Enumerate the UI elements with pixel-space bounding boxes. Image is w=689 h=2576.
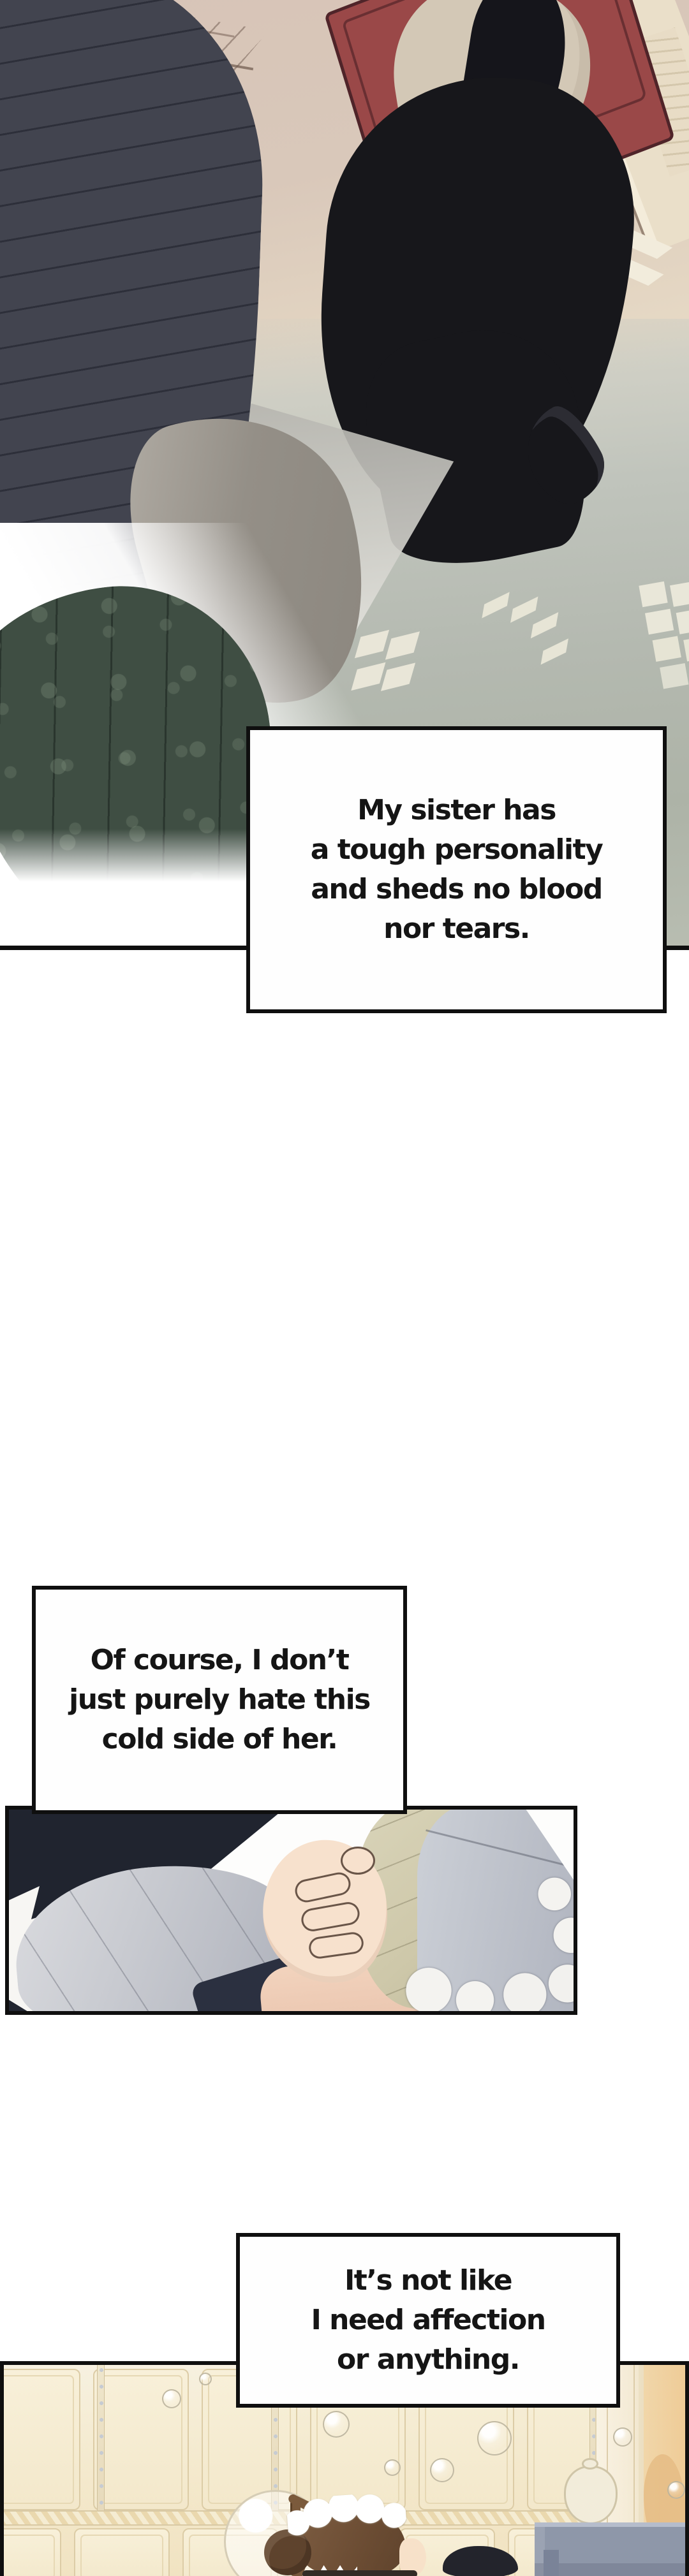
narration-box-2: Of course, I don’t just purely hate this… bbox=[32, 1586, 407, 1814]
soap-bubble bbox=[199, 2373, 212, 2385]
blanket-wool-trim bbox=[392, 1873, 577, 2011]
soap-bubble bbox=[613, 2427, 632, 2447]
panel-blanket-grip-scene bbox=[5, 1806, 577, 2015]
wall-panel bbox=[0, 2369, 80, 2510]
soap-bubble bbox=[162, 2389, 181, 2408]
bottom-white-fade bbox=[0, 829, 249, 946]
soap-bubble bbox=[430, 2458, 454, 2482]
narration-line: nor tears. bbox=[383, 909, 530, 949]
window-light-grid bbox=[639, 582, 667, 607]
wall-divider-strip bbox=[97, 2365, 105, 2513]
narration-line: just purely hate this bbox=[69, 1680, 370, 1720]
narration-box-1: My sister has a tough personality and sh… bbox=[246, 726, 667, 1013]
narration-box-3: It’s not like I need affection or anythi… bbox=[236, 2233, 620, 2408]
soap-bubble bbox=[477, 2421, 512, 2455]
narration-line: It’s not like bbox=[344, 2261, 512, 2301]
narration-line: and sheds no blood bbox=[311, 870, 602, 909]
teapot-lid bbox=[582, 2458, 598, 2470]
narration-line: Of course, I don’t bbox=[91, 1641, 349, 1680]
wall-panel-lower bbox=[0, 2528, 61, 2576]
soap-bubble bbox=[667, 2481, 685, 2499]
narration-line: a tough personality bbox=[311, 830, 603, 870]
glass-teapot bbox=[564, 2466, 618, 2524]
soap-bubble bbox=[323, 2411, 350, 2438]
thumb-knuckle bbox=[341, 1847, 375, 1875]
cabinet-leg bbox=[544, 2550, 559, 2576]
webtoon-page: My sister has a tough personality and sh… bbox=[0, 0, 689, 2576]
soap-bubble bbox=[384, 2459, 401, 2476]
narration-line: cold side of her. bbox=[102, 1720, 337, 1759]
narration-line: My sister has bbox=[357, 791, 556, 830]
maid-hair-bun bbox=[264, 2529, 311, 2575]
maid-dress-top bbox=[302, 2570, 417, 2576]
maid-figure bbox=[258, 2501, 430, 2576]
wall-panel-lower bbox=[74, 2528, 170, 2576]
narration-line: or anything. bbox=[337, 2340, 519, 2380]
narration-line: I need affection bbox=[311, 2301, 545, 2340]
